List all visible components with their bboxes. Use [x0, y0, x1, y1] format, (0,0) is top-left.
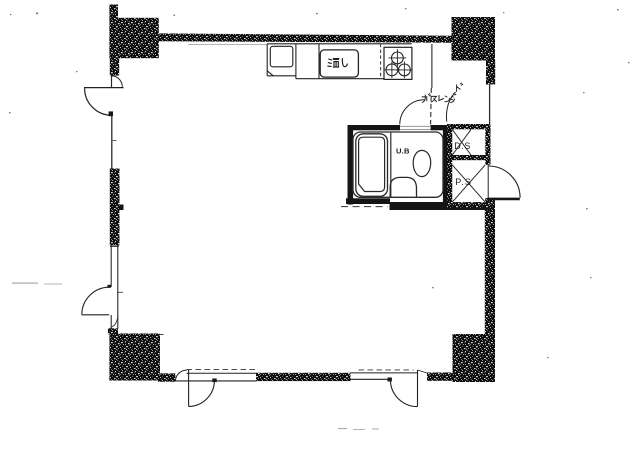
svg-text:U.B: U.B	[396, 147, 410, 156]
svg-text:P.S: P.S	[455, 177, 472, 187]
svg-text:D.S: D.S	[454, 141, 471, 151]
